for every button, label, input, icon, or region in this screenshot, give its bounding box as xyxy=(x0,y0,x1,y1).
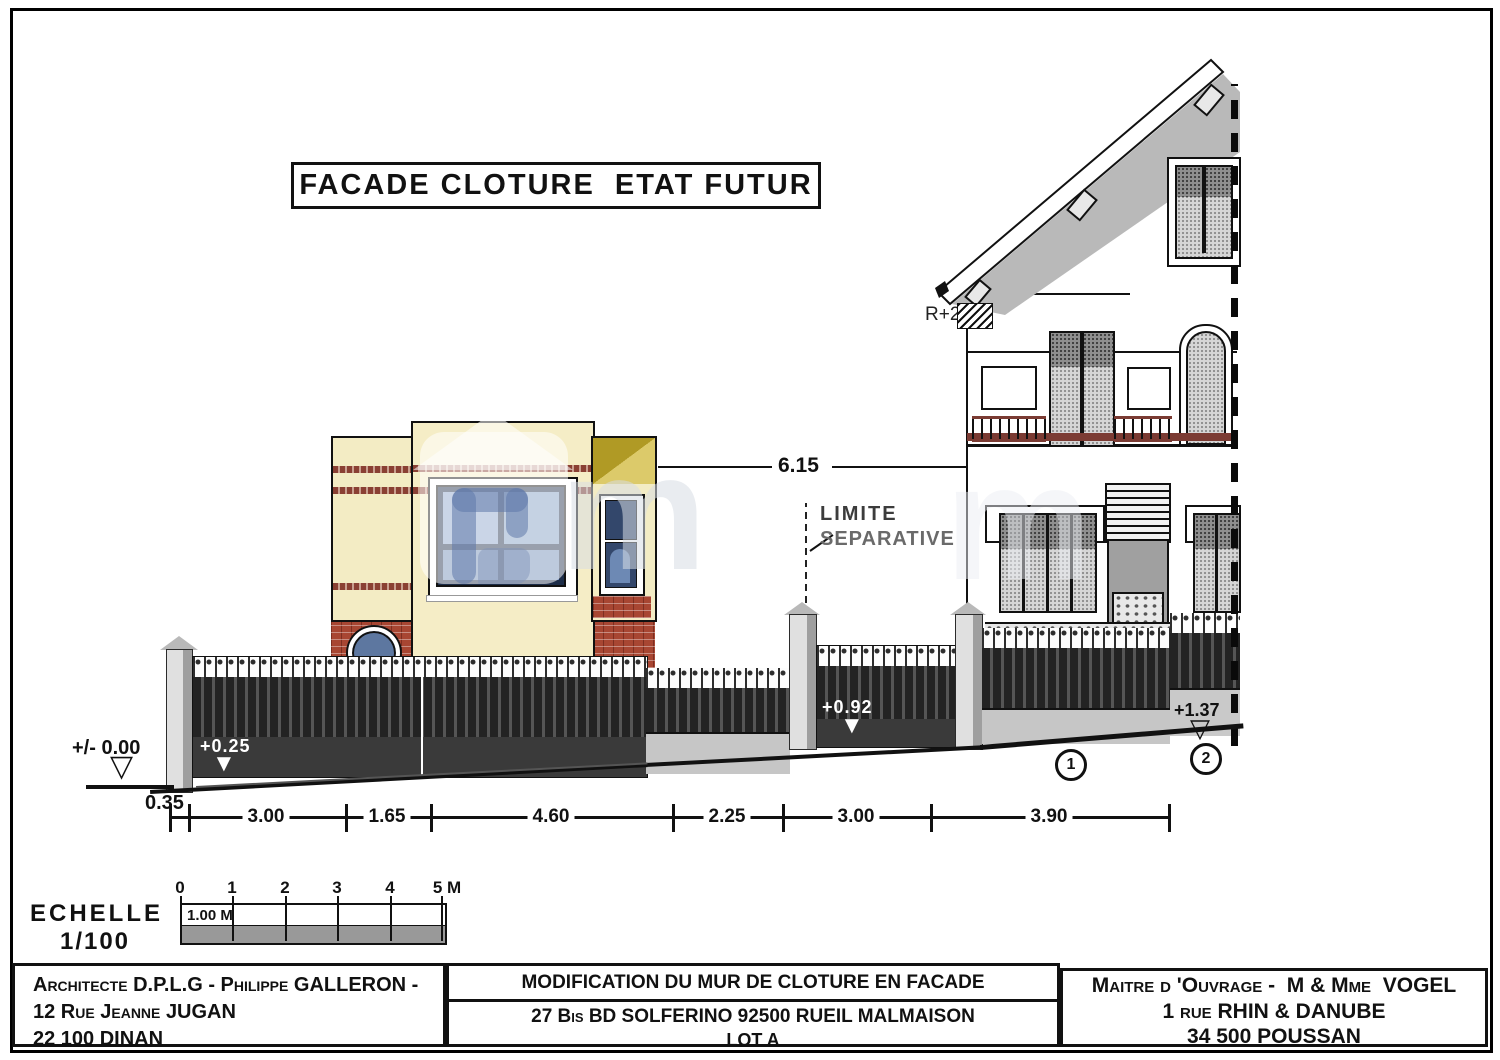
gate-pillar-right xyxy=(955,614,983,750)
scale-unit-label: 1.00 M xyxy=(187,907,233,924)
brick-band xyxy=(333,487,413,494)
scale-tick xyxy=(390,896,392,941)
fence-pillar-left xyxy=(166,649,193,793)
window-2f-right xyxy=(1127,367,1171,410)
window-2f-left xyxy=(981,366,1037,410)
french-door-mullion xyxy=(1080,333,1084,445)
fence-finials xyxy=(646,668,790,688)
project-lot: LOT A xyxy=(449,1029,1057,1051)
scale-bar-body: 1.00 M xyxy=(180,903,447,945)
scale-tick-label: 4 xyxy=(385,878,394,898)
arched-window-glass xyxy=(1186,331,1226,445)
gable-window-mullion xyxy=(1202,167,1206,253)
datum-triangle: ▽ xyxy=(110,755,133,779)
section-cut-line xyxy=(1231,84,1238,746)
dim-label: 1.65 xyxy=(364,804,411,830)
fence-finials xyxy=(1170,613,1240,633)
level-triangle: ▼ xyxy=(840,714,864,738)
dim-tick xyxy=(430,804,433,832)
main-window-sill xyxy=(426,595,578,602)
scale-tick xyxy=(285,896,287,941)
fence-wall-mid xyxy=(646,732,790,774)
dim-tick xyxy=(782,804,785,832)
datum-underline xyxy=(86,785,174,789)
limite-label-2: SEPARATIVE xyxy=(820,528,955,551)
scale-tick-label: 1 xyxy=(227,878,236,898)
fence-panel-1 xyxy=(192,656,648,778)
dim-label: 4.60 xyxy=(528,804,575,830)
span-dim-label: 6.15 xyxy=(778,454,819,478)
dim-label: 3.90 xyxy=(1026,804,1073,830)
offset-label: 0.35 xyxy=(145,792,184,815)
gate-base-dark xyxy=(817,719,955,747)
title-block-architect: Architecte D.P.L.G - Philippe GALLERON -… xyxy=(12,963,446,1047)
drawing-sheet: FACADE CLOTURE ETAT FUTUR xyxy=(0,0,1500,1060)
dim-tick xyxy=(1168,804,1171,832)
dim-tick xyxy=(345,804,348,832)
scale-tick-label: 5 M xyxy=(433,878,461,898)
fence-finials xyxy=(193,657,647,677)
fence-pickets xyxy=(193,677,647,737)
title-block-owner: Maitre d 'Ouvrage - M & Mme VOGEL 1 rue … xyxy=(1060,968,1488,1047)
fence-pickets xyxy=(646,688,790,732)
project-address-row: 27 Bis BD SOLFERINO 92500 RUEIL MALMAISO… xyxy=(449,1002,1057,1051)
span-dim-line-right xyxy=(832,466,966,468)
gate-leaf-divider xyxy=(421,663,423,775)
project-title: MODIFICATION DU MUR DE CLOTURE EN FACADE xyxy=(521,969,984,996)
mullion xyxy=(1215,515,1218,611)
marker-2: 2 xyxy=(1190,743,1222,775)
architect-line: 12 Rue Jeanne JUGAN xyxy=(33,999,443,1026)
level-triangle: ▼ xyxy=(212,752,236,776)
architect-line: Architecte D.P.L.G - Philippe GALLERON - xyxy=(33,972,443,999)
limite-label-1: LIMITE xyxy=(820,503,898,526)
title-block-project: MODIFICATION DU MUR DE CLOTURE EN FACADE… xyxy=(446,963,1060,1047)
marker-1-label: 1 xyxy=(1067,756,1076,773)
drawing-title-box: FACADE CLOTURE ETAT FUTUR xyxy=(291,162,821,209)
watermark-bubble xyxy=(478,548,530,584)
span-dim-line-left xyxy=(658,466,772,468)
marker-1: 1 xyxy=(1055,749,1087,781)
scale-tick xyxy=(232,896,234,941)
scale-tick xyxy=(441,896,443,941)
gable-window xyxy=(1167,157,1241,267)
owner-line: 1 rue RHIN & DANUBE xyxy=(1063,999,1485,1024)
scale-bar-midline xyxy=(182,925,445,926)
scale-tick xyxy=(180,896,182,941)
left-wing xyxy=(331,436,415,622)
owner-line: Maitre d 'Ouvrage - M & Mme VOGEL xyxy=(1063,973,1485,999)
scale-tick-label: 2 xyxy=(280,878,289,898)
watermark-letter: m xyxy=(560,452,707,572)
fence-pickets xyxy=(982,648,1170,708)
scale-tick xyxy=(337,896,339,941)
dim-label: 3.00 xyxy=(833,804,880,830)
brick-band xyxy=(333,466,413,473)
dim-tick xyxy=(169,804,172,832)
balcony-railing xyxy=(1114,416,1172,442)
dim-label: 2.25 xyxy=(704,804,751,830)
scale-name-1: ECHELLE xyxy=(30,900,160,928)
fence-base-dark xyxy=(193,737,647,777)
fence-pickets xyxy=(1170,633,1240,688)
r2-label: R+2 xyxy=(925,304,960,326)
brick-band xyxy=(333,583,413,590)
watermark-r-hook xyxy=(506,488,528,538)
door-shutter-box xyxy=(1105,483,1171,543)
gate-pillar-left xyxy=(789,614,817,750)
fence-finials xyxy=(817,646,955,666)
drawing-title: FACADE CLOTURE ETAT FUTUR xyxy=(299,169,812,202)
dim-tick xyxy=(188,804,191,832)
project-title-row: MODIFICATION DU MUR DE CLOTURE EN FACADE xyxy=(449,966,1057,1002)
dim-label: 3.00 xyxy=(243,804,290,830)
fence-finials xyxy=(982,628,1170,648)
dim-tick xyxy=(930,804,933,832)
r2-hatch xyxy=(957,303,993,329)
watermark-letter: m xyxy=(945,462,1092,582)
scale-name-2: 1/100 xyxy=(30,928,160,956)
dim-main-line xyxy=(169,816,1170,819)
arched-window xyxy=(1179,324,1233,446)
owner-line: 34 500 POUSSAN xyxy=(1063,1024,1485,1049)
marker-2-label: 2 xyxy=(1202,750,1211,767)
scale-tick-label: 3 xyxy=(332,878,341,898)
dim-tick xyxy=(672,804,675,832)
project-address: 27 Bis BD SOLFERINO 92500 RUEIL MALMAISO… xyxy=(449,1005,1057,1029)
scale-tick-label: 0 xyxy=(175,878,184,898)
architect-line: 22 100 DINAN xyxy=(33,1026,443,1053)
limite-dashed-line xyxy=(805,503,807,615)
